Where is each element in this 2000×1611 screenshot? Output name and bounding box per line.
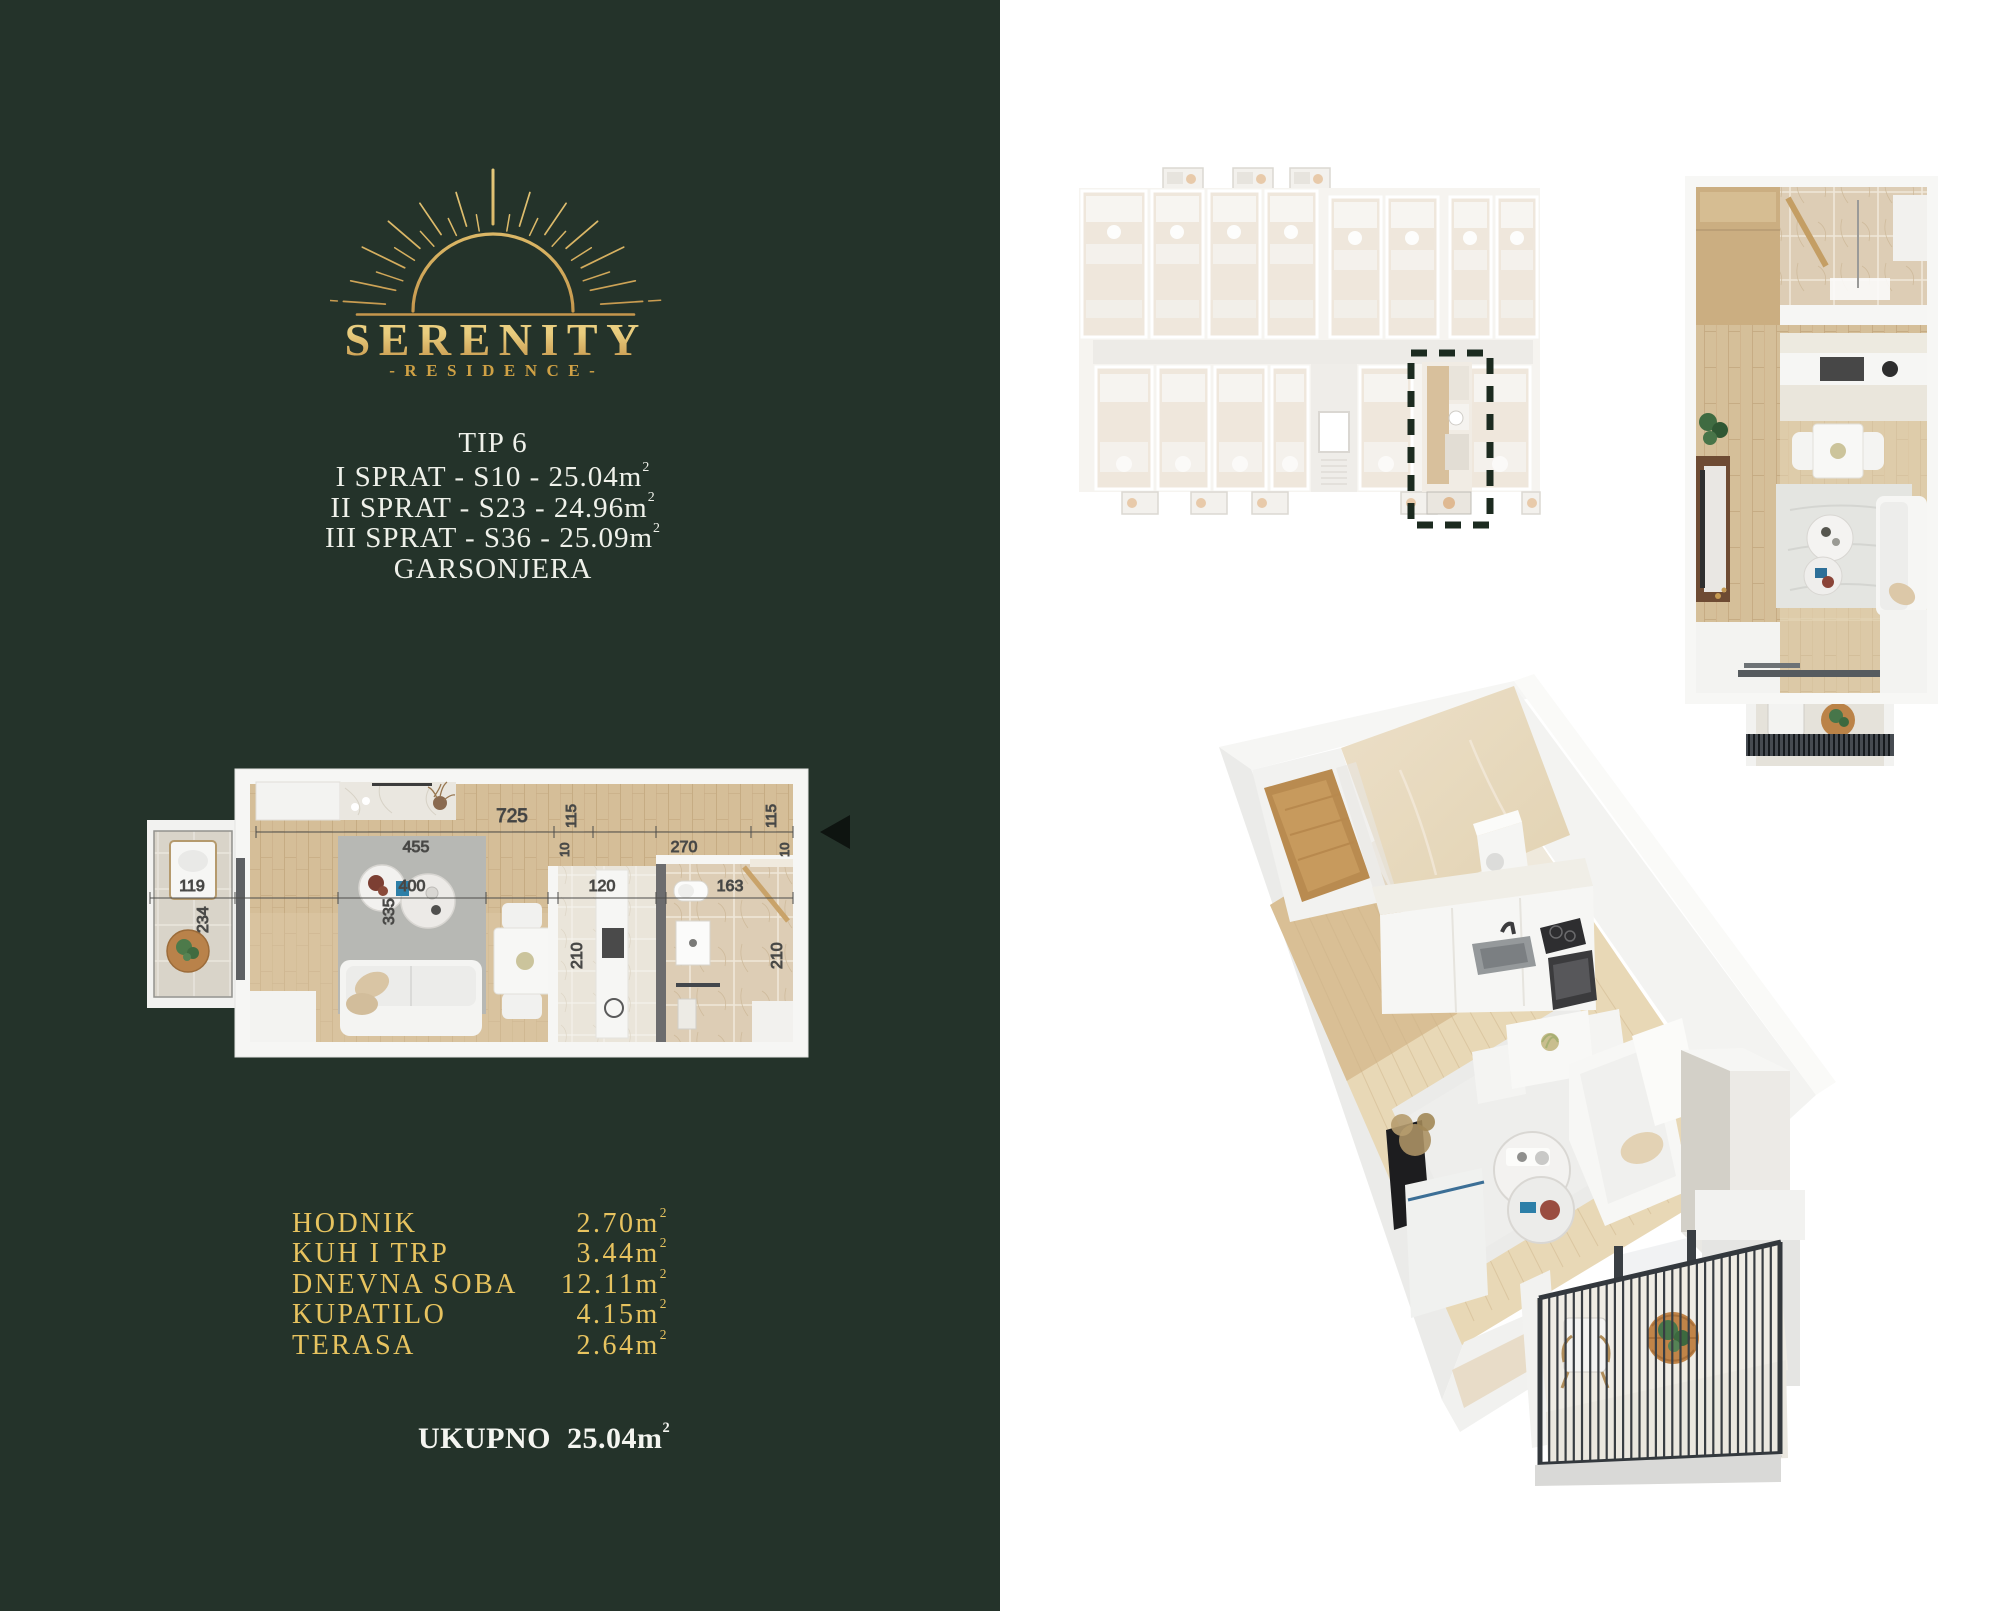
svg-text:10: 10 [557,843,572,857]
svg-text:234: 234 [195,906,212,933]
svg-text:210: 210 [569,942,586,969]
svg-text:119: 119 [179,878,205,895]
svg-text:455: 455 [403,839,430,856]
svg-text:115: 115 [563,804,580,828]
svg-text:400: 400 [399,878,426,895]
svg-text:10: 10 [777,843,792,857]
svg-text:270: 270 [671,839,698,856]
svg-text:335: 335 [381,898,398,925]
svg-text:163: 163 [717,878,744,895]
svg-text:725: 725 [496,806,528,827]
svg-text:115: 115 [763,804,780,828]
svg-text:120: 120 [589,878,616,895]
svg-text:210: 210 [769,942,786,969]
